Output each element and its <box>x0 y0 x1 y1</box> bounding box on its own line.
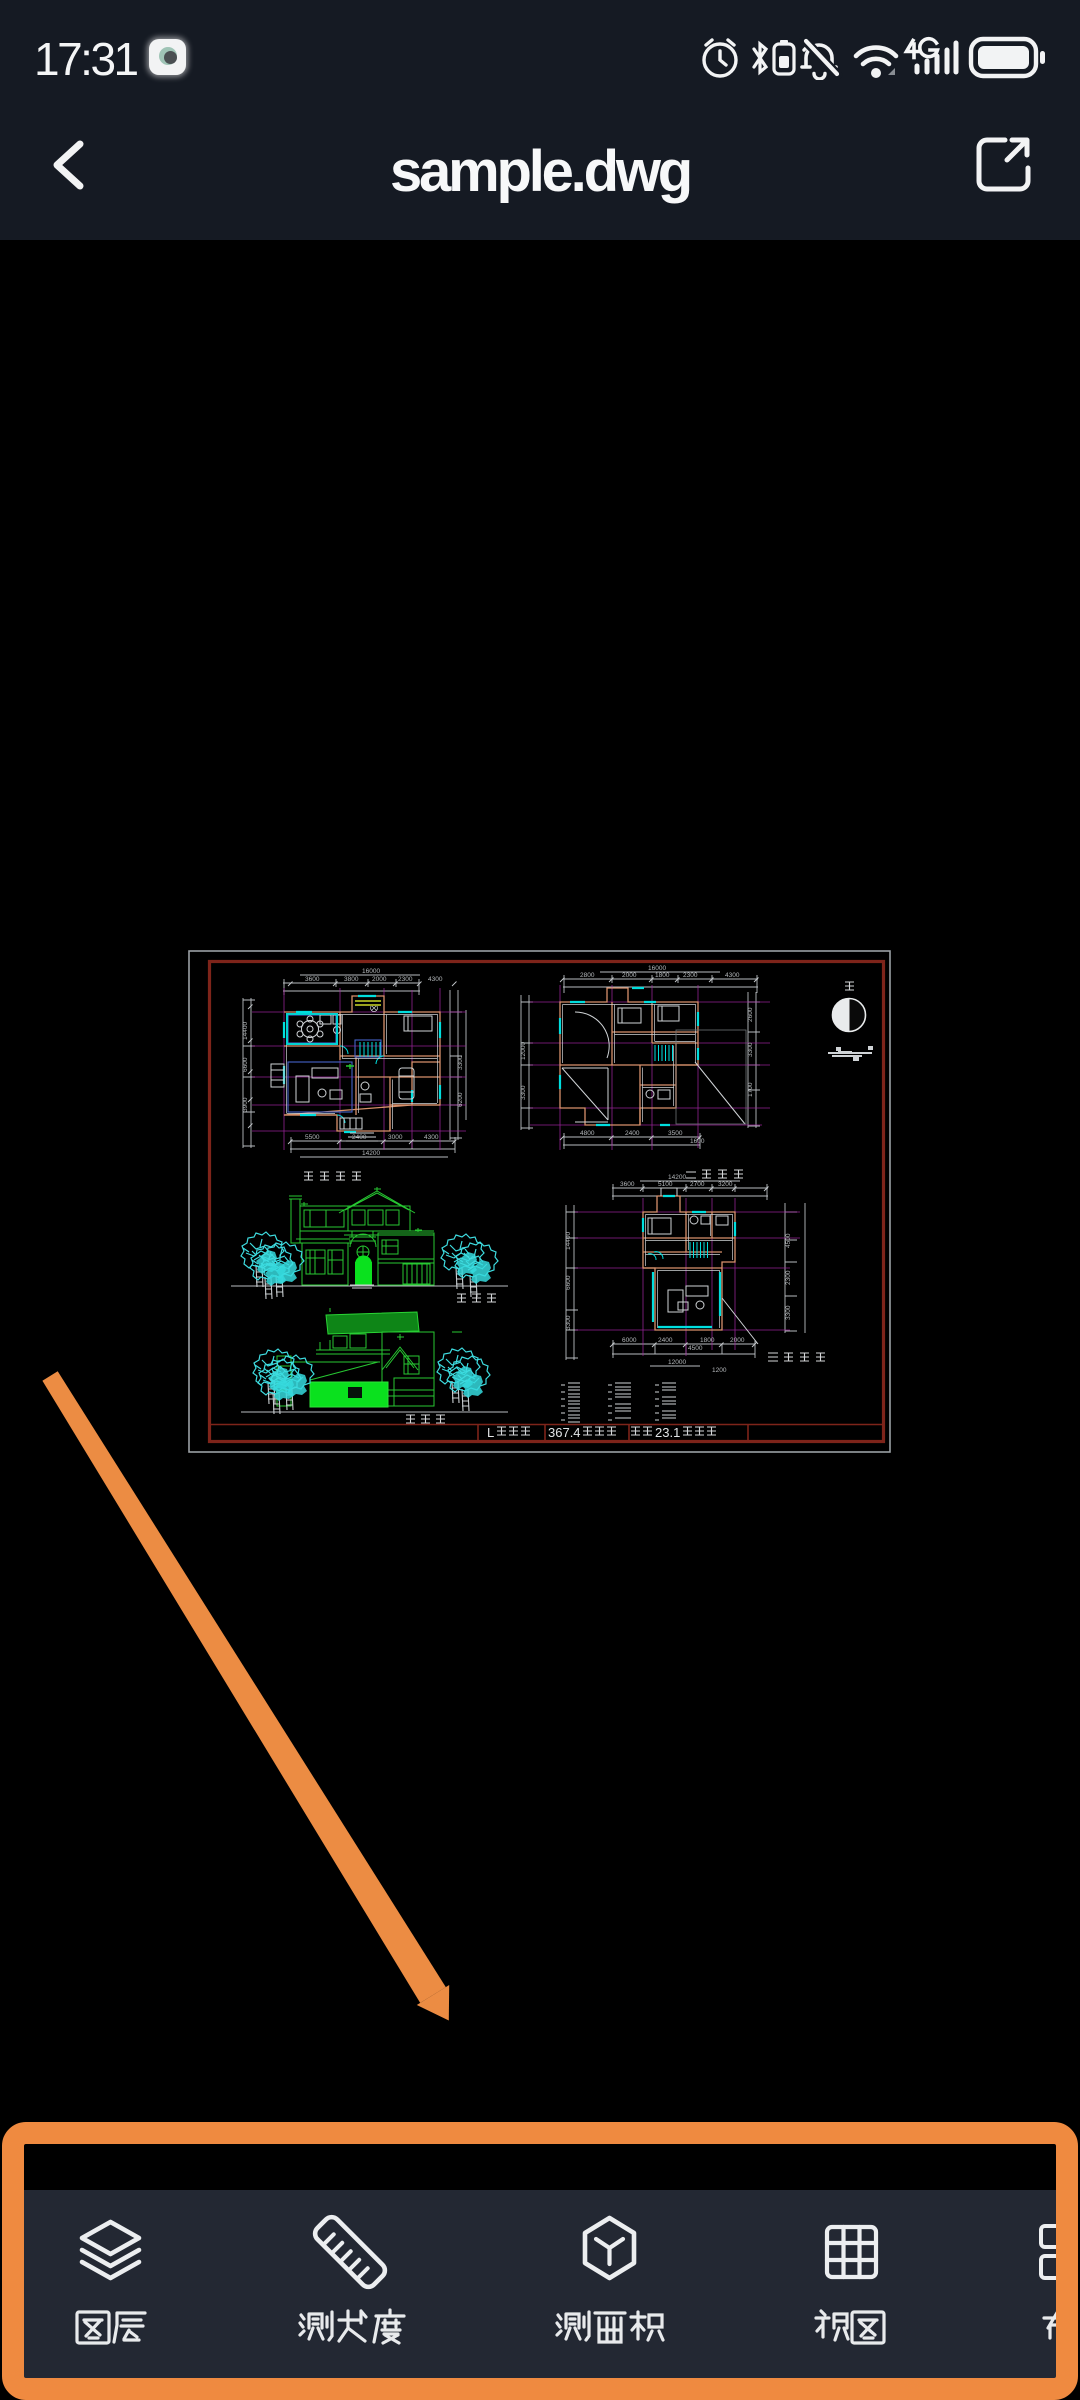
svg-text:5100: 5100 <box>658 1181 673 1188</box>
svg-text:12000: 12000 <box>668 1359 686 1366</box>
svg-text:2000: 2000 <box>372 976 387 983</box>
svg-text:3300: 3300 <box>457 1055 464 1070</box>
svg-text:367.4: 367.4 <box>548 1425 581 1440</box>
svg-text:2300: 2300 <box>398 976 413 983</box>
svg-text:16000: 16000 <box>362 968 380 975</box>
svg-text:1700: 1700 <box>747 1082 754 1097</box>
svg-text:4300: 4300 <box>725 972 740 979</box>
svg-text:6600: 6600 <box>242 1057 249 1072</box>
svg-text:2600: 2600 <box>747 1007 754 1022</box>
svg-text:3300: 3300 <box>747 1042 754 1057</box>
svg-text:14400: 14400 <box>565 1232 572 1250</box>
svg-text:4300: 4300 <box>424 1134 439 1141</box>
svg-text:3300: 3300 <box>565 1315 572 1330</box>
svg-text:6600: 6600 <box>565 1275 572 1290</box>
svg-text:2400: 2400 <box>658 1337 673 1344</box>
svg-text:4800: 4800 <box>580 1130 595 1137</box>
svg-text:14200: 14200 <box>362 1150 380 1157</box>
svg-text:2700: 2700 <box>690 1181 705 1188</box>
svg-text:3600: 3600 <box>620 1181 635 1188</box>
svg-text:2400: 2400 <box>352 1134 367 1141</box>
svg-text:1800: 1800 <box>655 972 670 979</box>
svg-text:3600: 3600 <box>305 976 320 983</box>
svg-text:5500: 5500 <box>305 1134 320 1141</box>
svg-text:L: L <box>487 1425 494 1440</box>
svg-text:16000: 16000 <box>648 965 666 972</box>
svg-text:4500: 4500 <box>688 1345 703 1352</box>
svg-text:12000: 12000 <box>520 1042 527 1060</box>
svg-text:2000: 2000 <box>730 1337 745 1344</box>
svg-text:3300: 3300 <box>520 1085 527 1100</box>
svg-text:3000: 3000 <box>388 1134 403 1141</box>
svg-text:2300: 2300 <box>785 1270 792 1285</box>
svg-text:4500: 4500 <box>785 1233 792 1248</box>
svg-text:4300: 4300 <box>428 976 443 983</box>
svg-text:2400: 2400 <box>625 1130 640 1137</box>
svg-text:3300: 3300 <box>785 1305 792 1320</box>
svg-text:2000: 2000 <box>622 972 637 979</box>
svg-text:14400: 14400 <box>242 1022 249 1040</box>
svg-text:14200: 14200 <box>668 1174 686 1181</box>
svg-text:1800: 1800 <box>700 1337 715 1344</box>
svg-text:23.1: 23.1 <box>655 1425 680 1440</box>
svg-text:2300: 2300 <box>683 972 698 979</box>
svg-text:3500: 3500 <box>668 1130 683 1137</box>
svg-text:6200: 6200 <box>457 1092 464 1107</box>
svg-text:1200: 1200 <box>712 1367 727 1374</box>
svg-text:3800: 3800 <box>344 976 359 983</box>
svg-text:2800: 2800 <box>580 972 595 979</box>
svg-text:6000: 6000 <box>622 1337 637 1344</box>
svg-text:1600: 1600 <box>690 1138 705 1145</box>
svg-text:3900: 3900 <box>242 1097 249 1112</box>
svg-text:3200: 3200 <box>718 1181 733 1188</box>
